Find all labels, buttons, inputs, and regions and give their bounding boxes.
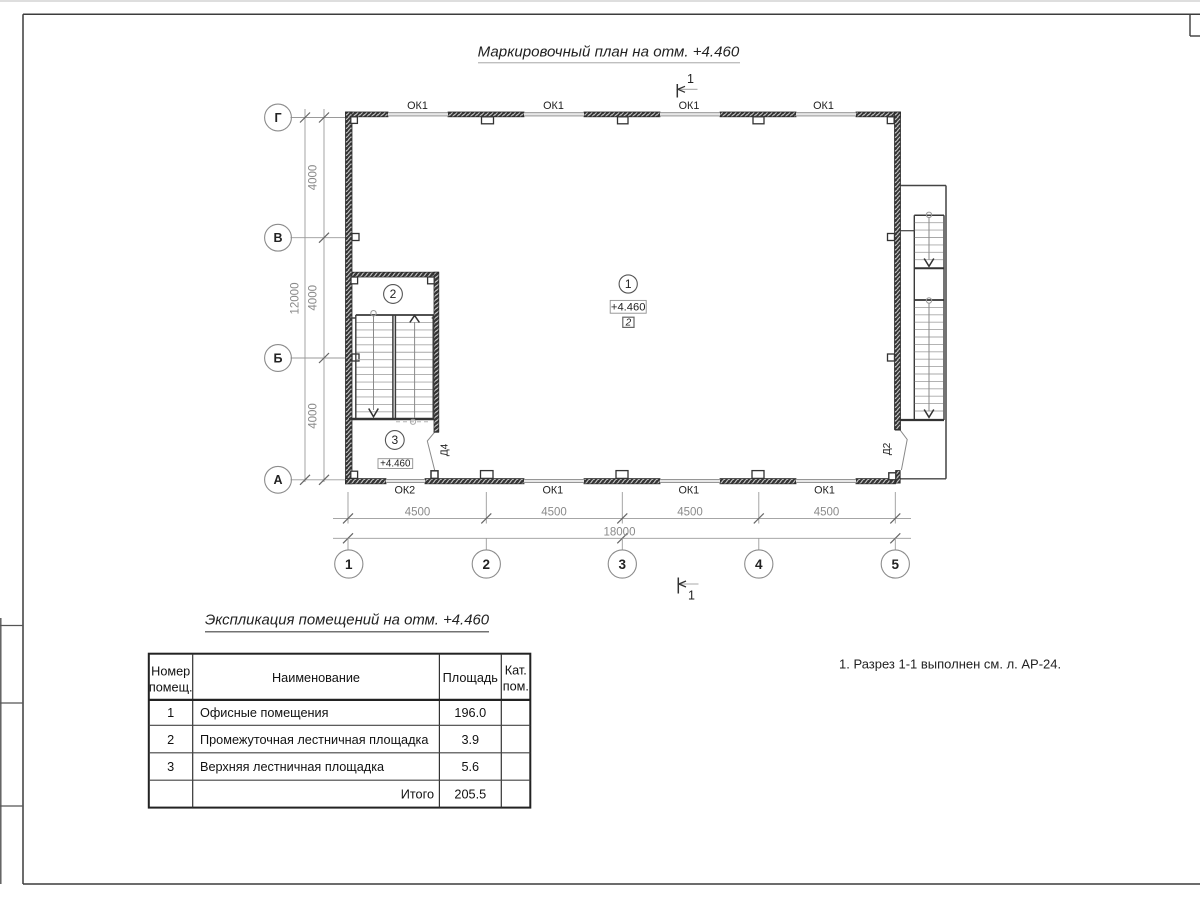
svg-text:ОК1: ОК1 [679,100,700,112]
svg-text:5.6: 5.6 [461,760,479,774]
svg-text:Офисные помещения: Офисные помещения [200,706,328,720]
svg-text:12000: 12000 [290,283,302,315]
svg-text:4500: 4500 [405,506,431,518]
svg-text:2: 2 [483,557,491,572]
svg-text:Наименование: Наименование [272,671,360,685]
svg-text:Кат.: Кат. [505,664,527,678]
svg-text:Маркировочный план на отм. +4.: Маркировочный план на отм. +4.460 [478,44,740,61]
svg-text:Промежуточная лестничная площа: Промежуточная лестничная площадка [200,733,429,747]
svg-text:4500: 4500 [541,506,567,518]
svg-text:1: 1 [345,557,353,572]
svg-text:ОК1: ОК1 [407,100,428,112]
svg-text:2: 2 [390,287,397,301]
svg-text:3: 3 [391,433,398,447]
svg-text:4000: 4000 [308,165,320,191]
svg-text:ОК1: ОК1 [542,485,563,497]
svg-text:ОК2: ОК2 [394,485,415,497]
svg-text:Экспликация помещений на отм.: Экспликация помещений на отм. +4.460 [205,612,490,628]
svg-text:1: 1 [688,589,695,603]
svg-text:4000: 4000 [308,403,320,429]
svg-text:2: 2 [625,318,632,329]
svg-text:Площадь: Площадь [443,671,499,685]
svg-text:ОК1: ОК1 [813,100,834,112]
svg-text:196.0: 196.0 [454,706,486,720]
svg-text:5: 5 [892,557,900,572]
svg-text:Д4: Д4 [440,443,451,456]
svg-text:В: В [273,231,282,245]
svg-text:А: А [273,473,282,487]
svg-text:2: 2 [167,733,174,747]
svg-text:3.9: 3.9 [461,733,479,747]
svg-text:4000: 4000 [308,285,320,311]
svg-text:4500: 4500 [814,506,840,518]
svg-text:+4.460: +4.460 [380,459,411,470]
svg-text:Верхняя лестничная площадка: Верхняя лестничная площадка [200,760,385,774]
svg-text:4: 4 [755,557,763,572]
svg-text:1: 1 [687,72,694,86]
svg-text:+4.460: +4.460 [611,302,646,314]
svg-text:3: 3 [619,557,627,572]
svg-text:Номер: Номер [151,665,190,679]
svg-text:пом.: пом. [503,680,529,694]
svg-text:ОК1: ОК1 [543,100,564,112]
svg-text:3: 3 [167,760,174,774]
svg-text:Д2: Д2 [882,442,893,455]
svg-text:4500: 4500 [677,506,703,518]
svg-text:18000: 18000 [604,526,636,538]
svg-text:1. Разрез 1-1 выполнен см. л.: 1. Разрез 1-1 выполнен см. л. АР-24. [839,657,1061,672]
svg-text:205.5: 205.5 [454,788,486,802]
svg-text:1: 1 [625,277,632,291]
svg-text:1: 1 [167,706,174,720]
svg-text:Итого: Итого [401,788,434,802]
svg-text:Б: Б [274,351,283,365]
svg-text:Г: Г [274,111,281,125]
svg-text:помещ.: помещ. [149,681,193,695]
svg-text:ОК1: ОК1 [678,485,699,497]
svg-text:ОК1: ОК1 [814,485,835,497]
